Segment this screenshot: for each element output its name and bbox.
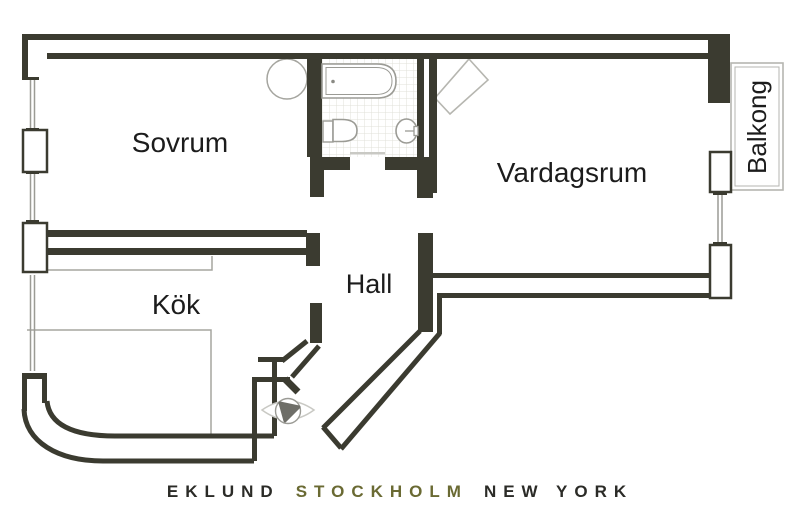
wall-funnel-h-inner xyxy=(258,357,284,362)
wall-bottom-inner xyxy=(433,273,713,278)
round-stove-icon xyxy=(267,59,307,99)
corner-fireplace-icon xyxy=(435,59,488,114)
label-balkong: Balkong xyxy=(742,80,772,174)
sink-faucet xyxy=(414,127,418,136)
wall-sill xyxy=(22,373,47,379)
toilet-icon xyxy=(333,120,357,142)
wall-curve-inner xyxy=(47,401,274,436)
pier-left-2 xyxy=(23,223,47,272)
wall-left-upper xyxy=(22,34,28,80)
wall-funnel-v-outer xyxy=(252,380,257,461)
room-labels: Sovrum Vardagsrum Kök Hall Balkong xyxy=(132,80,772,320)
wall-kok-top xyxy=(47,248,306,255)
bathtub-drain xyxy=(331,80,335,84)
wall-right-upper xyxy=(708,34,730,103)
curved-walls xyxy=(24,331,440,461)
brand-word-eklund: EKLUND xyxy=(167,482,280,502)
kitchen-counter xyxy=(27,256,212,435)
pier-right-2 xyxy=(710,245,731,298)
wall-sovrum-bottom xyxy=(47,230,307,237)
brand-footer: EKLUNDSTOCKHOLMNEW YORK xyxy=(167,482,633,502)
wall-funnel-diag-left-inner xyxy=(282,341,307,361)
label-sovrum: Sovrum xyxy=(132,127,228,158)
wall-sovrum-bath xyxy=(307,53,322,157)
label-kok: Kök xyxy=(152,289,201,320)
window-cap xyxy=(26,77,39,80)
toilet-tank xyxy=(323,121,333,142)
floorplan-page: Sovrum Vardagsrum Kök Hall Balkong EKLUN… xyxy=(0,0,800,530)
counter-top xyxy=(47,256,212,270)
wall-funnel-cap-right xyxy=(323,427,341,448)
wall-bottom-outer-stub xyxy=(437,298,442,334)
wall-funnel-cap-left xyxy=(285,379,298,392)
wall-bottom-outer xyxy=(437,293,730,298)
brand-word-newyork: NEW YORK xyxy=(484,482,633,502)
wall-bath-bottom-left xyxy=(310,157,350,170)
wall-funnel-diag-right-outer xyxy=(341,333,440,449)
wall-bath-bottom-right xyxy=(385,157,425,170)
wall-kok-cap xyxy=(306,233,320,266)
brand-word-stockholm: STOCKHOLM xyxy=(296,482,468,502)
wall-kok-door xyxy=(310,303,322,343)
wall-top xyxy=(22,34,730,40)
pier-left-1 xyxy=(23,130,47,172)
door-threshold xyxy=(350,152,385,155)
wall-funnel-v-inner xyxy=(272,360,277,436)
wall-left-lower-inner xyxy=(42,379,47,403)
wall-bath-right xyxy=(417,53,424,157)
label-hall: Hall xyxy=(346,269,393,299)
entrance-door-symbol xyxy=(262,399,314,424)
wall-vardagsrum-left xyxy=(429,53,437,193)
wall-hall-divider xyxy=(418,233,433,332)
floorplan-drawing: Sovrum Vardagsrum Kök Hall Balkong xyxy=(0,0,800,530)
wall-left-lower-outer xyxy=(22,379,27,411)
label-vardagsrum: Vardagsrum xyxy=(497,157,647,188)
wall-rooms-top xyxy=(47,53,712,59)
pier-right-1 xyxy=(710,152,731,192)
